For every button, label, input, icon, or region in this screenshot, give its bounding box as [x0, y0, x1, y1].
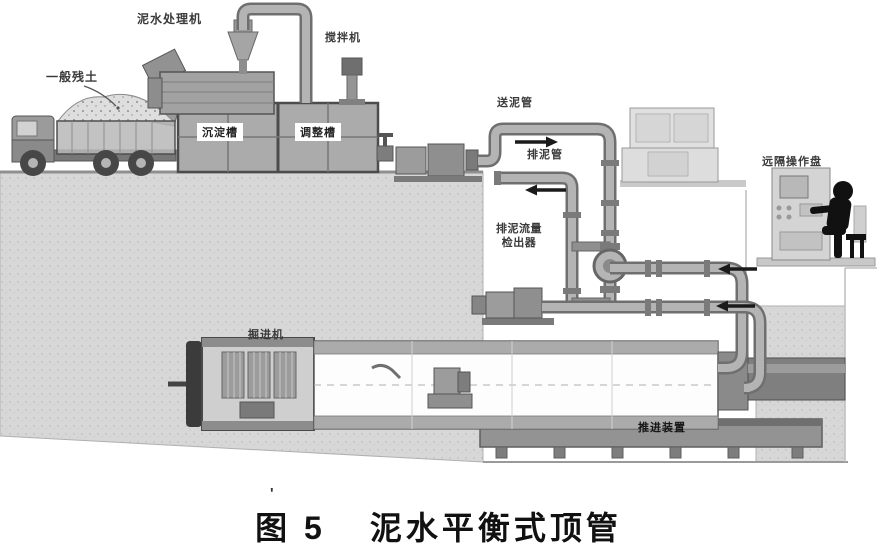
label-jacking-device: 推进装置 — [638, 421, 686, 435]
tbm-motors — [222, 352, 296, 398]
diagram-canvas — [0, 0, 877, 556]
jacked-pipe-string — [314, 341, 748, 429]
label-mixer: 搅拌机 — [325, 31, 361, 45]
discharge-pump — [472, 288, 554, 325]
flow-arrow-right — [515, 137, 558, 148]
label-feed-pipe: 送泥管 — [497, 96, 533, 110]
label-discharge-pipe: 排泥管 — [527, 148, 563, 162]
caption-number: 图 5 — [255, 503, 326, 549]
control-station — [757, 168, 875, 266]
mixer-unit — [339, 58, 365, 105]
figure-slurry-pipe-jacking: 泥水处理机 搅拌机 一般残土 沉淀槽 调整槽 送泥管 排泥管 排泥流量 检出器 … — [0, 0, 877, 556]
label-sedimentation-tank: 沉淀槽 — [197, 123, 243, 141]
flow-arrow-left-top — [525, 185, 566, 196]
stray-mark: ' — [270, 485, 274, 502]
label-general-soil: 一般残土 — [46, 70, 98, 86]
label-slurry-treatment-machine: 泥水处理机 — [137, 12, 202, 28]
label-remote-panel: 远隔操作盘 — [762, 155, 822, 169]
leader-dot — [116, 106, 119, 109]
label-flow-detector-line1: 排泥流量 — [487, 222, 551, 236]
label-adjustment-tank: 调整槽 — [295, 123, 341, 141]
tbm-machine — [168, 338, 314, 430]
figure-caption: 图 5 泥水平衡式顶管 — [0, 503, 877, 549]
label-tbm: 掘进机 — [248, 328, 284, 342]
caption-title: 泥水平衡式顶管 — [370, 503, 622, 549]
label-flow-detector: 排泥流量 检出器 — [487, 222, 551, 251]
in-pipe-pump — [428, 368, 472, 408]
site-building — [622, 108, 718, 182]
label-flow-detector-line2: 检出器 — [487, 236, 551, 250]
panel-screen — [780, 176, 808, 198]
